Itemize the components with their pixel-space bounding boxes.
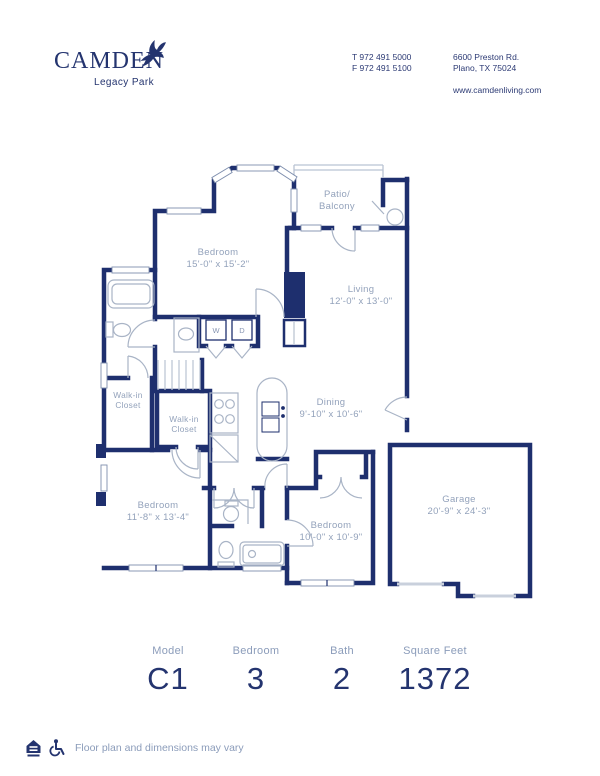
stat-sqft-label: Square Feet [380,645,490,657]
label-patio-2: Balcony [319,201,355,212]
wall-pier [96,492,106,506]
legal-bar: Floor plan and dimensions may vary [24,738,244,757]
label-garage: Garage [442,494,476,505]
stat-sqft: Square Feet 1372 [380,645,490,697]
stat-sqft-value: 1372 [380,661,490,697]
powder-counter [212,500,248,524]
floorplan-page: CAMDEN Legacy Park T 972 491 5000 F 972 … [0,0,600,776]
doors [128,201,407,546]
sink [179,328,194,340]
label-living: Living [348,284,375,295]
equal-housing-icon [24,738,43,757]
burner [215,400,224,409]
toilet [106,322,113,337]
vanity [174,318,199,352]
label-patio-1: Patio/ [324,189,350,200]
label-walkin1-2: Closet [115,400,141,410]
label-walkin1-1: Walk-in [113,390,143,400]
label-bedroom3-dims: 10'-0" x 10'-9" [300,532,363,543]
label-master-bedroom: Bedroom [198,247,239,258]
label-dining: Dining [317,397,346,408]
label-bedroom3: Bedroom [311,520,352,531]
stove-counter [210,393,238,433]
pedestal-sink [219,542,233,559]
label-living-dims: 12'-0" x 13'-0" [330,296,393,307]
wall-pier [96,444,106,458]
label-bedroom2: Bedroom [138,500,179,511]
disclaimer-text: Floor plan and dimensions may vary [75,742,244,754]
label-bedroom2-dims: 11'-8" x 13'-4" [127,512,189,523]
label-master-bedroom-dims: 15'-0" x 15'-2" [187,259,250,270]
label-washer: W [212,326,220,335]
label-walkin2-2: Closet [171,424,197,434]
patio-railing [294,165,383,178]
media-niche [284,320,305,346]
label-dryer: D [239,326,245,335]
label-garage-dims: 20'-9" x 24'-3" [428,506,491,517]
accessibility-icon [49,739,65,757]
island-sink [262,402,284,432]
toilet-bowl [224,507,239,522]
label-walkin2-1: Walk-in [169,414,199,424]
label-dining-dims: 9'-10" x 10'-6" [300,409,363,420]
water-heater [387,209,403,225]
stats-row: Model C1 Bedroom 3 Bath 2 Square Feet 13… [0,645,600,715]
stairs [158,360,200,390]
fireplace [284,272,305,318]
